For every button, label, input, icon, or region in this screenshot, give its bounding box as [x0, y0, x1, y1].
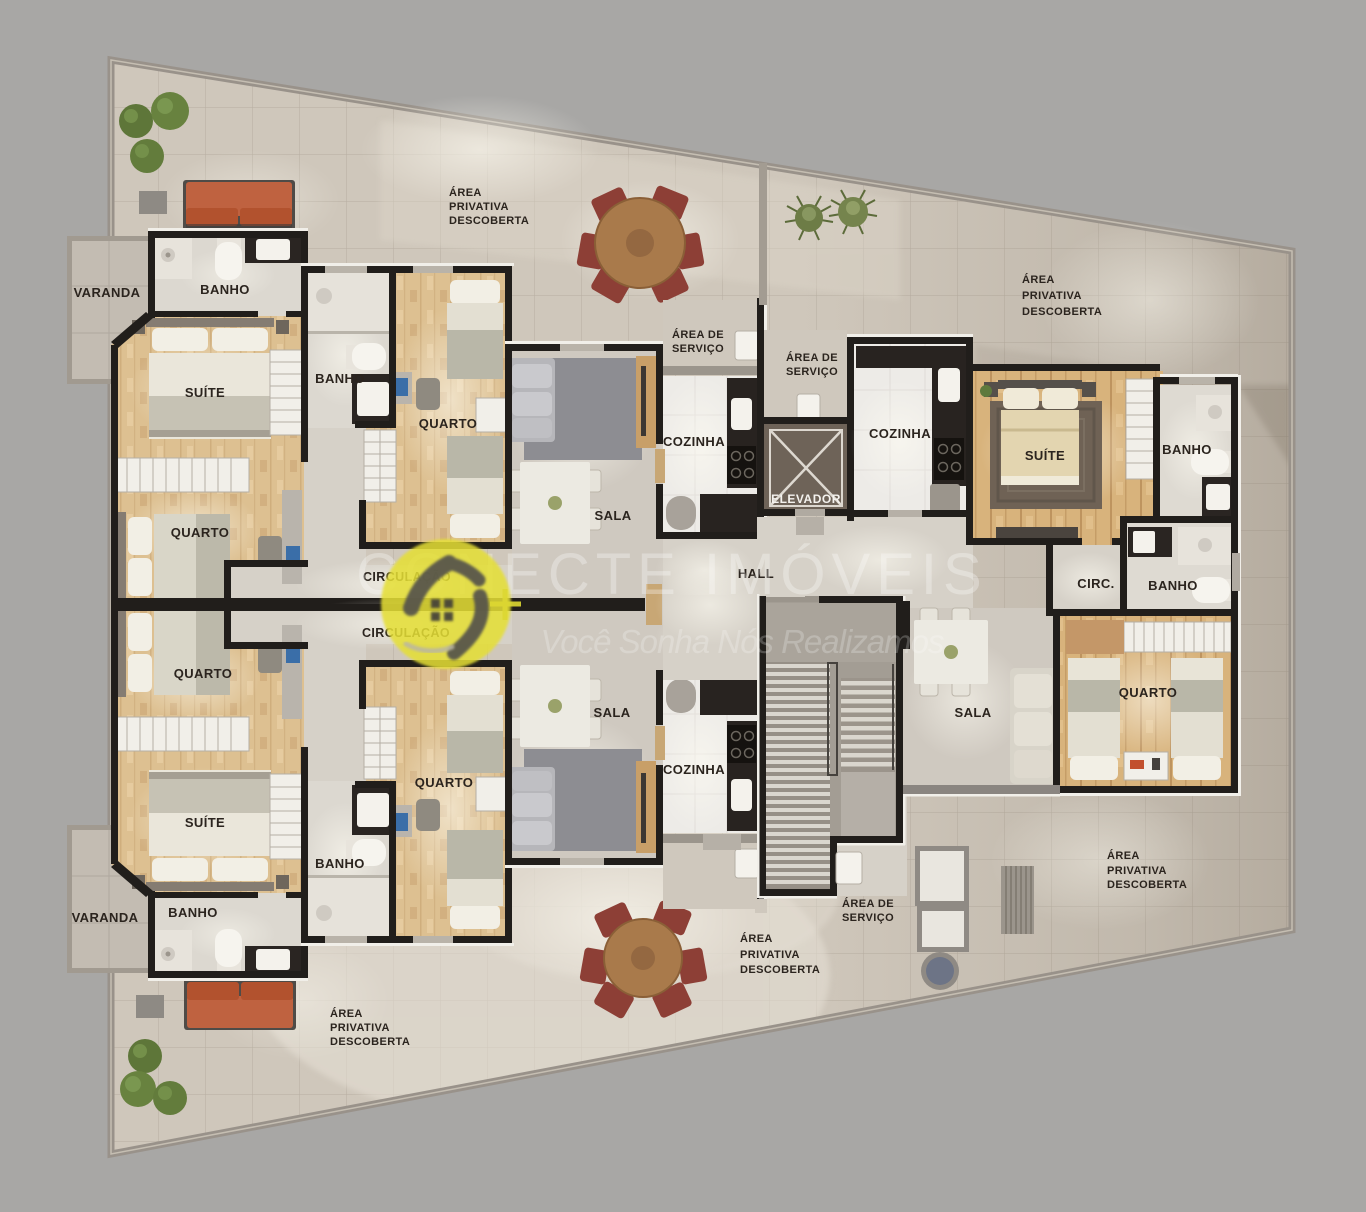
svg-text:COZINHA: COZINHA	[663, 434, 725, 449]
svg-text:SALA: SALA	[594, 705, 631, 720]
svg-text:SERVIÇO: SERVIÇO	[842, 912, 894, 924]
svg-text:VARANDA: VARANDA	[72, 910, 139, 925]
svg-text:DESCOBERTA: DESCOBERTA	[330, 1036, 410, 1048]
svg-text:ÁREA: ÁREA	[1107, 849, 1140, 862]
svg-text:ELEVADOR: ELEVADOR	[771, 492, 841, 506]
svg-text:ÁREA: ÁREA	[330, 1007, 363, 1020]
svg-text:BANHO: BANHO	[168, 905, 218, 920]
svg-text:QUARTO: QUARTO	[1119, 685, 1178, 700]
svg-text:ÁREA DE: ÁREA DE	[842, 897, 894, 910]
svg-text:BANHO: BANHO	[1148, 578, 1198, 593]
svg-text:CIRC.: CIRC.	[1077, 576, 1114, 591]
svg-text:ÁREA DE: ÁREA DE	[786, 351, 838, 364]
svg-text:DESCOBERTA: DESCOBERTA	[449, 215, 529, 227]
svg-text:BANHO: BANHO	[315, 856, 365, 871]
svg-text:SUÍTE: SUÍTE	[185, 385, 225, 400]
svg-text:ÁREA: ÁREA	[740, 932, 773, 945]
svg-text:QUARTO: QUARTO	[419, 416, 478, 431]
svg-text:ÁREA: ÁREA	[1022, 273, 1055, 286]
svg-text:SALA: SALA	[595, 508, 632, 523]
svg-text:PRIVATIVA: PRIVATIVA	[449, 201, 509, 213]
svg-text:PRIVATIVA: PRIVATIVA	[1022, 290, 1082, 302]
svg-text:DESCOBERTA: DESCOBERTA	[740, 964, 820, 976]
svg-text:SERVIÇO: SERVIÇO	[672, 343, 724, 355]
svg-text:PRIVATIVA: PRIVATIVA	[330, 1022, 390, 1034]
svg-text:SERVIÇO: SERVIÇO	[786, 366, 838, 378]
svg-text:COZINHA: COZINHA	[869, 426, 931, 441]
svg-text:PRIVATIVA: PRIVATIVA	[1107, 865, 1167, 877]
svg-text:DESCOBERTA: DESCOBERTA	[1107, 879, 1187, 891]
svg-text:QUARTO: QUARTO	[415, 775, 474, 790]
svg-text:ÁREA: ÁREA	[449, 186, 482, 199]
svg-text:SUÍTE: SUÍTE	[185, 815, 225, 830]
svg-text:Você Sonha Nós Realizamos: Você Sonha Nós Realizamos	[540, 623, 944, 660]
svg-text:BANHO: BANHO	[1162, 442, 1212, 457]
svg-text:ÁREA DE: ÁREA DE	[672, 328, 724, 341]
svg-text:SUÍTE: SUÍTE	[1025, 448, 1065, 463]
svg-text:QUARTO: QUARTO	[174, 666, 233, 681]
svg-text:VARANDA: VARANDA	[74, 285, 141, 300]
svg-text:SALA: SALA	[955, 705, 992, 720]
svg-text:BANHO: BANHO	[315, 371, 365, 386]
svg-text:QUARTO: QUARTO	[171, 525, 230, 540]
svg-text:BANHO: BANHO	[200, 282, 250, 297]
svg-text:COZINHA: COZINHA	[663, 762, 725, 777]
svg-text:DESCOBERTA: DESCOBERTA	[1022, 306, 1102, 318]
svg-text:PRIVATIVA: PRIVATIVA	[740, 949, 800, 961]
